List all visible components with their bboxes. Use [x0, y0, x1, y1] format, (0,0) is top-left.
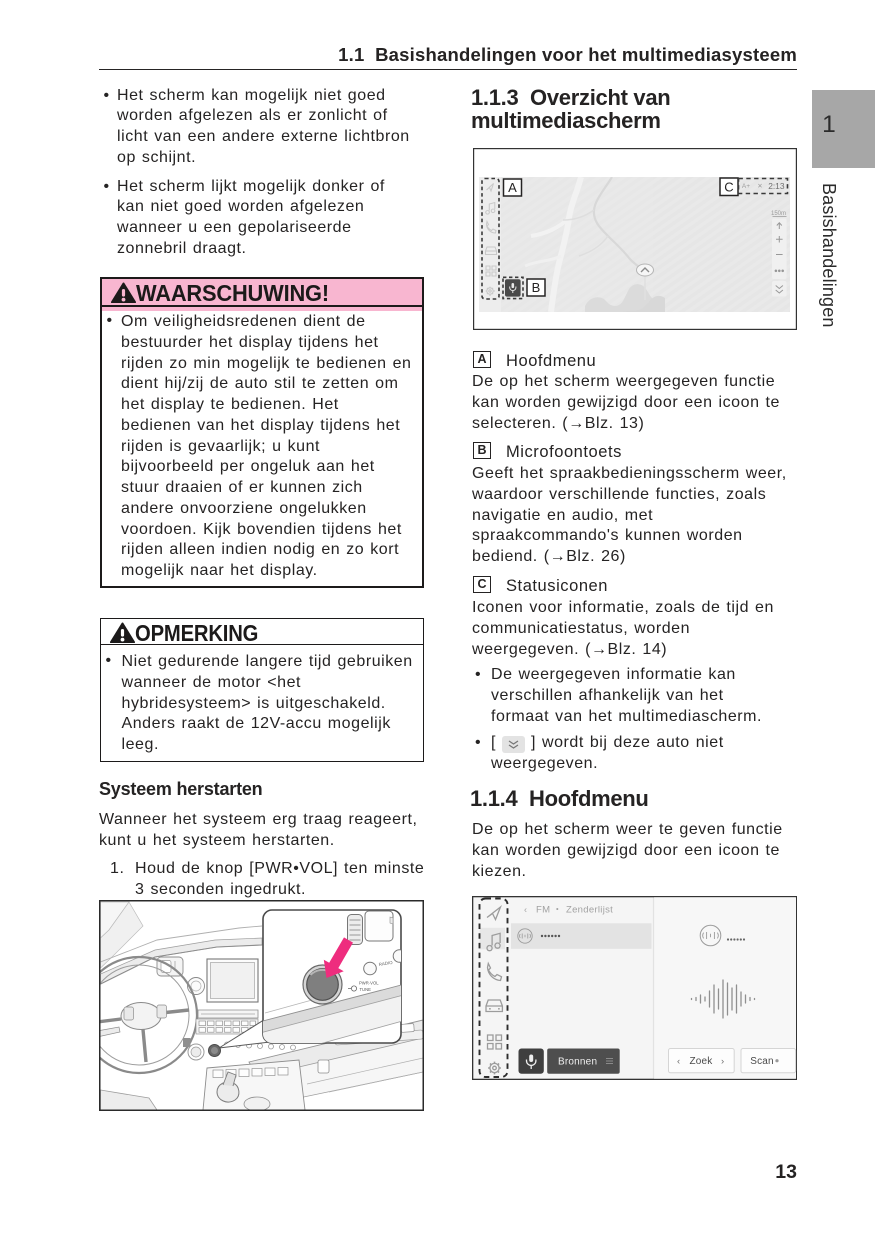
svg-text:PWR·VOL: PWR·VOL	[359, 981, 379, 986]
svg-text:2:13: 2:13	[768, 181, 785, 191]
svg-text:Zoek: Zoek	[689, 1056, 713, 1067]
svg-text:B: B	[532, 280, 541, 295]
svg-text:TUNE: TUNE	[360, 987, 372, 992]
svg-text:•: •	[556, 905, 559, 914]
svg-text:A+: A+	[742, 183, 750, 190]
svg-text:FM: FM	[536, 905, 550, 916]
svg-text:‹: ‹	[677, 1056, 680, 1067]
svg-text:Scan: Scan	[750, 1056, 774, 1067]
svg-text:A: A	[508, 180, 517, 195]
svg-text:C: C	[724, 180, 733, 195]
svg-text:✕: ✕	[757, 183, 762, 190]
svg-text:›: ›	[721, 1056, 724, 1067]
svg-text:‹: ‹	[524, 905, 527, 915]
svg-text:Bronnen: Bronnen	[558, 1057, 597, 1068]
svg-text:Zenderlijst: Zenderlijst	[566, 905, 613, 916]
